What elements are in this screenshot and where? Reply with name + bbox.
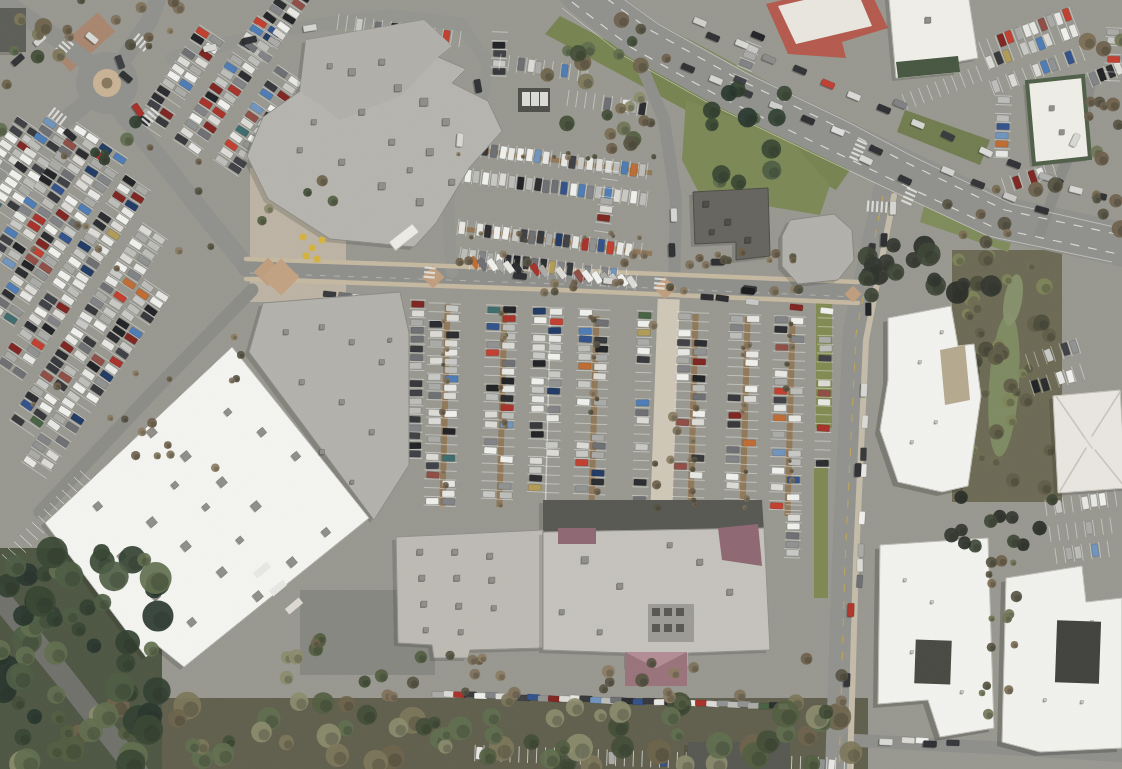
photo-grain-overlay — [0, 0, 1122, 769]
aerial-imagery-canvas[interactable] — [0, 0, 1122, 769]
aerial-orthophoto — [0, 0, 1122, 769]
overlay — [0, 0, 1122, 769]
